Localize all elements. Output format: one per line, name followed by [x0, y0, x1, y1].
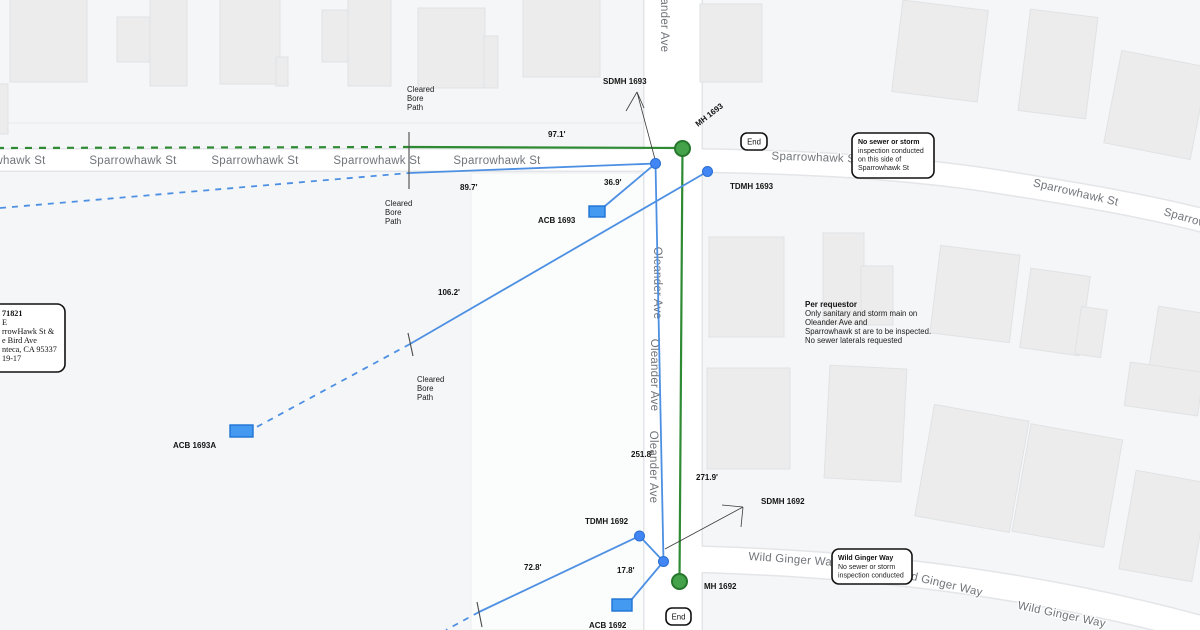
building — [484, 36, 498, 88]
building — [1018, 9, 1098, 119]
note-line: Path — [385, 217, 401, 226]
callout-line: Sparrowhawk St — [858, 165, 909, 172]
street-label-sparrowhawk: Sparrowhawk St — [453, 155, 541, 167]
job-info-box: 71821 E rrowHawk St & e Bird Ave nteca, … — [0, 304, 65, 372]
acb-1693a-box — [230, 425, 253, 437]
distance-89-7: 89.7' — [460, 183, 478, 192]
map-canvas: Sparrowhawk St Sparrowhawk St Sparrowhaw… — [0, 0, 1200, 630]
note-line: Cleared — [407, 85, 434, 94]
building — [276, 57, 288, 86]
street-label-sparrowhawk: Sparrowhawk St — [333, 155, 421, 167]
building — [322, 10, 350, 62]
note-line: Bore — [385, 208, 401, 217]
green-main-sparrowhawk — [409, 147, 682, 148]
building — [915, 405, 1029, 533]
note-line: Path — [417, 393, 433, 402]
manhole-dot — [651, 159, 661, 169]
label-tdmh-1693: TDMH 1693 — [730, 182, 774, 191]
note-line: Only sanitary and storm main on — [805, 309, 917, 318]
street-label-oleander: Oleander Ave — [648, 339, 660, 411]
callout-title: No sewer or storm — [858, 139, 919, 146]
building — [1104, 50, 1200, 159]
label-tdmh-1692: TDMH 1692 — [585, 517, 629, 526]
label-sdmh-1693: SDMH 1693 — [603, 77, 647, 86]
distance-36-9: 36.9' — [604, 178, 622, 187]
note-line: Cleared — [417, 375, 444, 384]
tdmh-1693-dot — [703, 167, 713, 177]
note-line: Bore — [417, 384, 433, 393]
label-sdmh-1692: SDMH 1692 — [761, 497, 805, 506]
acb-1692-box — [612, 599, 632, 611]
street-label-oleander: Oleander Ave — [647, 431, 659, 503]
callout-line: No sewer or storm — [838, 564, 895, 571]
street-label-sparrowhawk: Sparrowhawk St — [211, 155, 299, 167]
end-badge-sparrowhawk: End — [741, 133, 767, 150]
end-badge-oleander: End — [666, 608, 691, 625]
callout-line: inspection conducted — [858, 148, 924, 155]
note-line: Oleander Ave and — [805, 318, 867, 327]
distance-271-9: 271.9' — [696, 473, 718, 482]
label-acb-1693a: ACB 1693A — [173, 441, 216, 450]
info-line: nteca, CA 95337 — [2, 345, 57, 354]
building — [824, 365, 907, 482]
building — [523, 0, 600, 77]
building — [707, 368, 790, 469]
distance-97-1: 97.1' — [548, 130, 566, 139]
note-line: Path — [407, 103, 423, 112]
callout-title: Wild Ginger Way — [838, 555, 893, 562]
callout-wild-ginger: Wild Ginger Way No sewer or storm inspec… — [832, 549, 912, 584]
info-line: e Bird Ave — [2, 336, 37, 345]
info-line: 71821 — [2, 309, 22, 318]
note-line: Cleared — [385, 199, 412, 208]
callout-line: inspection conducted — [838, 573, 904, 580]
label-acb-1693: ACB 1693 — [538, 216, 576, 225]
info-line: 19-17 — [2, 354, 21, 363]
info-line: E — [2, 318, 7, 327]
label-mh-1692: MH 1692 — [704, 582, 737, 591]
building — [10, 0, 87, 82]
building — [117, 17, 152, 62]
building — [1012, 424, 1123, 547]
building — [892, 0, 989, 102]
utility-inspection-map: Sparrowhawk St Sparrowhawk St Sparrowhaw… — [0, 0, 1200, 630]
building — [348, 0, 391, 86]
note-title: Per requestor — [805, 300, 857, 309]
parcel — [471, 173, 644, 630]
note-line: No sewer laterals requested — [805, 336, 902, 345]
mh-1692-circle — [672, 574, 687, 589]
acb-1693-box — [589, 206, 605, 217]
callout-sparrowhawk: No sewer or storm inspection conducted o… — [852, 133, 934, 178]
building — [0, 84, 8, 134]
tdmh-1692-dot — [635, 531, 645, 541]
distance-251-8: 251.8' — [631, 450, 653, 459]
mh-1693-circle — [675, 141, 690, 156]
label-acb-1692: ACB 1692 — [589, 621, 627, 630]
info-line: rrowHawk St & — [2, 327, 55, 336]
distance-106-2: 106.2' — [438, 288, 460, 297]
distance-72-8: 72.8' — [524, 563, 542, 572]
street-label-sparrowhawk: Sparrowhawk St — [0, 155, 46, 167]
street-label-oleander: Oleander Ave — [658, 0, 670, 52]
manhole-dot — [659, 557, 669, 567]
end-badge-label: End — [672, 613, 686, 622]
building — [220, 0, 280, 84]
building — [700, 4, 762, 82]
distance-17-8: 17.8' — [617, 566, 635, 575]
building — [150, 0, 187, 86]
note-line: Bore — [407, 94, 423, 103]
end-badge-label: End — [747, 138, 761, 147]
building — [418, 8, 485, 88]
building — [709, 237, 784, 337]
note-line: Sparrowhawk st are to be inspected. — [805, 327, 931, 336]
callout-line: on this side of — [858, 157, 901, 164]
street-label-sparrowhawk: Sparrowhawk St — [89, 155, 177, 167]
building — [930, 245, 1020, 342]
